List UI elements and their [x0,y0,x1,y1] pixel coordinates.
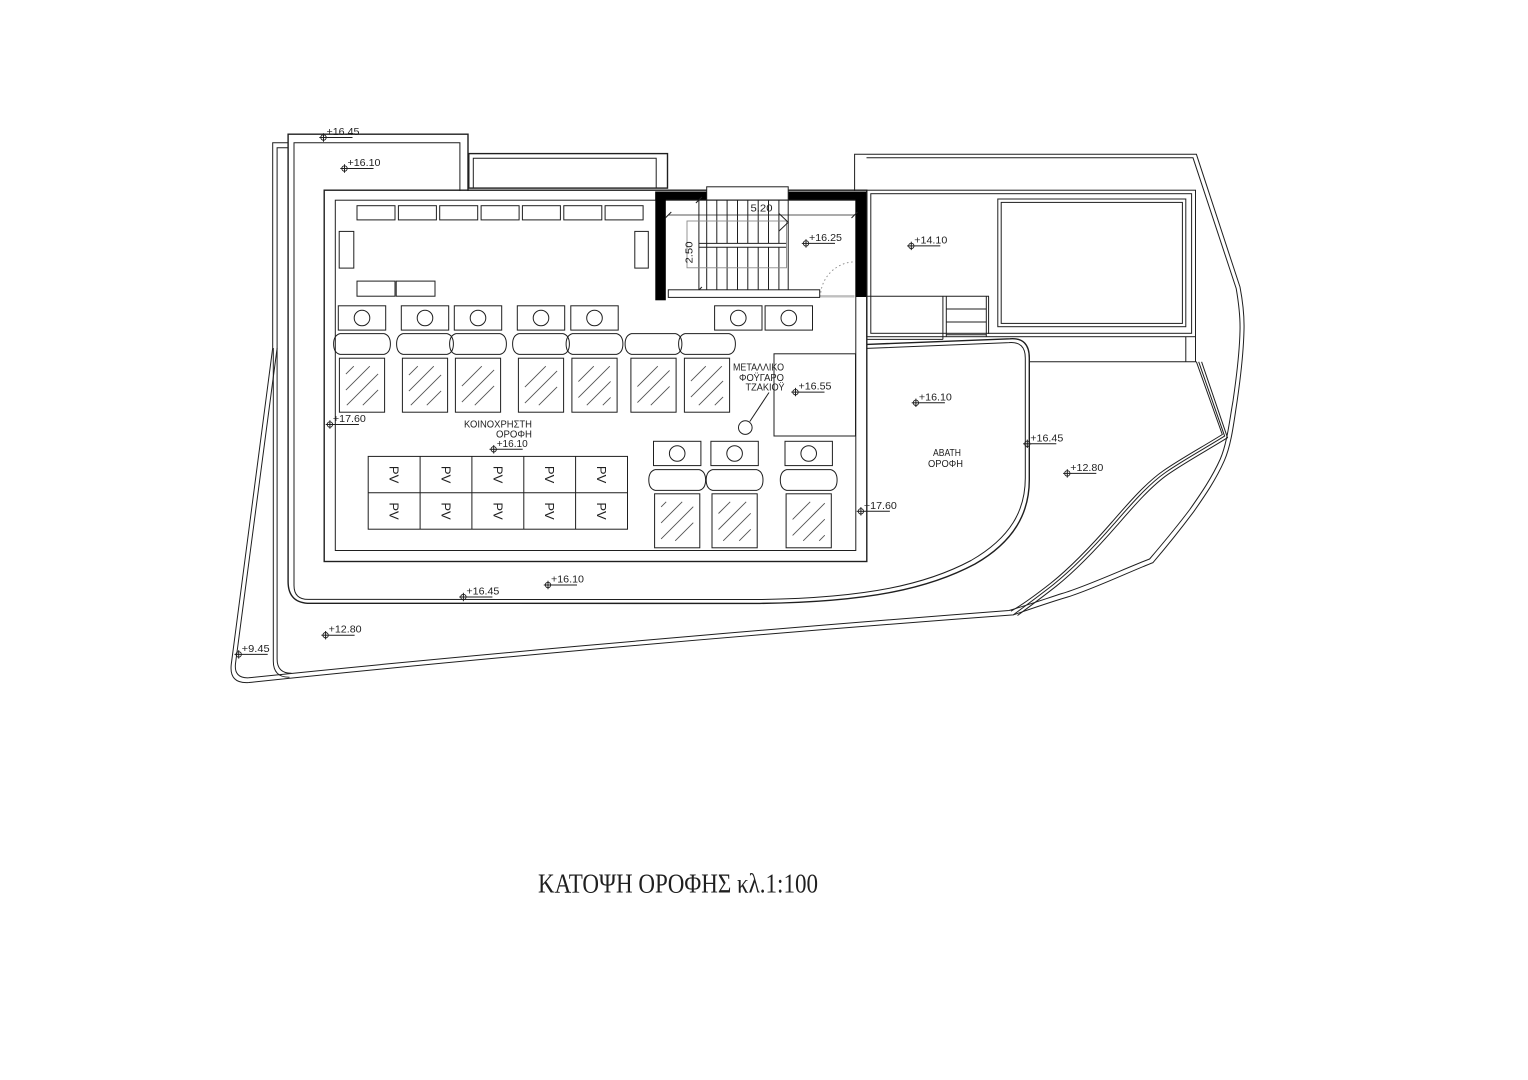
svg-text:+16.10: +16.10 [497,438,528,450]
svg-text:PV: PV [490,466,505,484]
svg-text:PV: PV [387,466,402,484]
svg-text:PV: PV [490,502,505,520]
svg-text:PV: PV [542,502,557,520]
svg-text:PV: PV [387,502,402,520]
svg-text:+16.45: +16.45 [466,586,499,598]
svg-text:+14.10: +14.10 [914,234,947,246]
svg-text:+16.55: +16.55 [799,381,832,393]
svg-text:PV: PV [439,466,454,484]
svg-text:PV: PV [594,466,609,484]
svg-text:PV: PV [594,502,609,520]
svg-text:+16.10: +16.10 [919,391,952,403]
svg-text:+16.45: +16.45 [1030,432,1063,444]
svg-text:PV: PV [439,502,454,520]
svg-text:2.50: 2.50 [684,241,696,263]
svg-text:ΚΑΤΟΨΗ ΟΡΟΦΗΣ κλ.1:100: ΚΑΤΟΨΗ ΟΡΟΦΗΣ κλ.1:100 [538,869,818,899]
svg-text:ΤΖΑΚΙΟΫ: ΤΖΑΚΙΟΫ [746,381,785,393]
svg-text:+17.60: +17.60 [864,500,897,512]
svg-text:+16.45: +16.45 [327,126,360,138]
svg-text:ΟΡΟΦΗ: ΟΡΟΦΗ [928,459,963,470]
svg-text:+16.25: +16.25 [809,232,842,244]
svg-text:ΜΕΤΑΛΛΙΚΟ: ΜΕΤΑΛΛΙΚΟ [733,362,784,373]
svg-text:PV: PV [542,466,557,484]
svg-text:+16.10: +16.10 [348,157,381,169]
svg-text:+9.45: +9.45 [242,643,270,655]
svg-text:+16.10: +16.10 [551,574,584,586]
svg-text:+17.60: +17.60 [333,413,366,425]
svg-text:ΑΒΑΤΗ: ΑΒΑΤΗ [933,448,961,459]
svg-text:+12.80: +12.80 [329,624,362,636]
svg-text:+12.80: +12.80 [1070,462,1103,474]
svg-text:5.20: 5.20 [751,203,773,215]
